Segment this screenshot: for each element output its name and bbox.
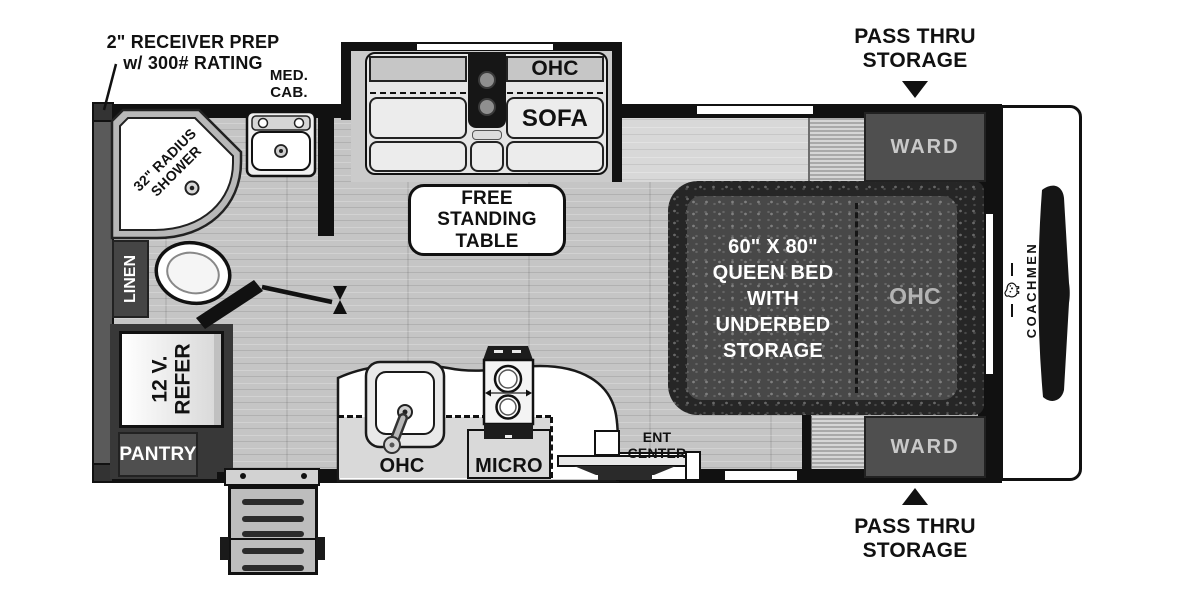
- sofa-label: SOFA: [506, 103, 604, 135]
- sofa-console-tray: [472, 130, 502, 140]
- pantry: PANTRY: [118, 432, 198, 477]
- micro-label: MICRO: [465, 455, 553, 477]
- window-top: [697, 106, 813, 114]
- bath-sink: [247, 112, 315, 176]
- bed-label: 60" X 80" QUEEN BED WITH UNDERBED STORAG…: [692, 226, 854, 372]
- bath-door-pivot-top: [333, 286, 347, 300]
- step-handle-left: [220, 537, 229, 560]
- threshold-pin-left: [217, 472, 225, 483]
- table-label: FREE STANDING TABLE: [408, 184, 566, 256]
- bed-platform: [620, 112, 808, 182]
- threshold-bolt-right: [301, 473, 307, 479]
- cooktop: [478, 343, 540, 443]
- step-tread-5: [242, 565, 304, 571]
- nightstand-bottom: [810, 416, 864, 476]
- bath-door-pivot-bottom: [333, 300, 347, 314]
- bed-head-divider: [855, 203, 858, 393]
- sofa-cushion-left: [369, 97, 467, 139]
- bedroom-partition-bottom: [802, 408, 811, 483]
- logo-dash-right: [1011, 263, 1013, 276]
- kitchen-ohc-label: OHC: [345, 455, 459, 477]
- sofa-cupholder-2: [478, 98, 496, 116]
- window-bottom: [725, 471, 797, 480]
- step-tread-4: [242, 548, 304, 554]
- step-handle-right: [316, 537, 325, 560]
- step-tread-2: [242, 516, 304, 522]
- pass-thru-top-arrow-icon: [902, 81, 928, 98]
- threshold-bolt-left: [240, 473, 246, 479]
- bath-door: [262, 287, 332, 302]
- coachmen-wordmark: COACHMEN: [1024, 242, 1039, 339]
- pass-thru-top-label: PASS THRU STORAGE: [848, 23, 982, 75]
- wardrobe-bottom: WARD: [864, 416, 986, 478]
- sofa-backrest-dash-left: [370, 92, 466, 94]
- coachmen-brand: COACHMEN: [962, 228, 1078, 352]
- bathroom-fixtures: [95, 100, 365, 350]
- sofa-ohc-label: OHC: [506, 56, 604, 82]
- logo-dash-left: [1011, 304, 1013, 317]
- slideout-window: [417, 44, 553, 50]
- sofa-backrest-dash-right: [507, 92, 603, 94]
- step-tread-1: [242, 499, 304, 505]
- step-tread-3: [242, 531, 304, 537]
- steps-divider: [230, 538, 316, 540]
- floorplan-canvas: OHC SOFA 60" X 80" QUEEN BED WITH UNDERB…: [0, 0, 1200, 600]
- nightstand-top: [808, 112, 864, 182]
- coachmen-dog-logo: [1002, 280, 1022, 300]
- sofa-console: [468, 52, 506, 128]
- sofa-cupholder-1: [478, 71, 496, 89]
- wardrobe-top: WARD: [864, 112, 986, 182]
- refer-label: 12 V. REFER: [148, 344, 194, 415]
- sofa-front-left: [369, 141, 467, 172]
- sofa-front-right: [506, 141, 604, 172]
- sofa-front-middle: [470, 141, 504, 172]
- ent-center-label: ENT CENTER: [612, 439, 702, 453]
- receiver-prep-label: 2" RECEIVER PREP w/ 300# RATING: [103, 32, 283, 74]
- slideout-wall-right: [612, 42, 622, 182]
- sofa-ohc-left: [369, 56, 467, 82]
- pass-thru-bottom-label: PASS THRU STORAGE: [848, 513, 982, 565]
- med-cab-label: MED. CAB.: [260, 66, 318, 102]
- bed-ohc-label: OHC: [872, 283, 958, 309]
- receiver-leader-line: [96, 58, 126, 116]
- pass-thru-bottom-arrow-icon: [902, 488, 928, 505]
- kitchen-sink: [360, 355, 455, 460]
- threshold-pin-right: [319, 472, 327, 483]
